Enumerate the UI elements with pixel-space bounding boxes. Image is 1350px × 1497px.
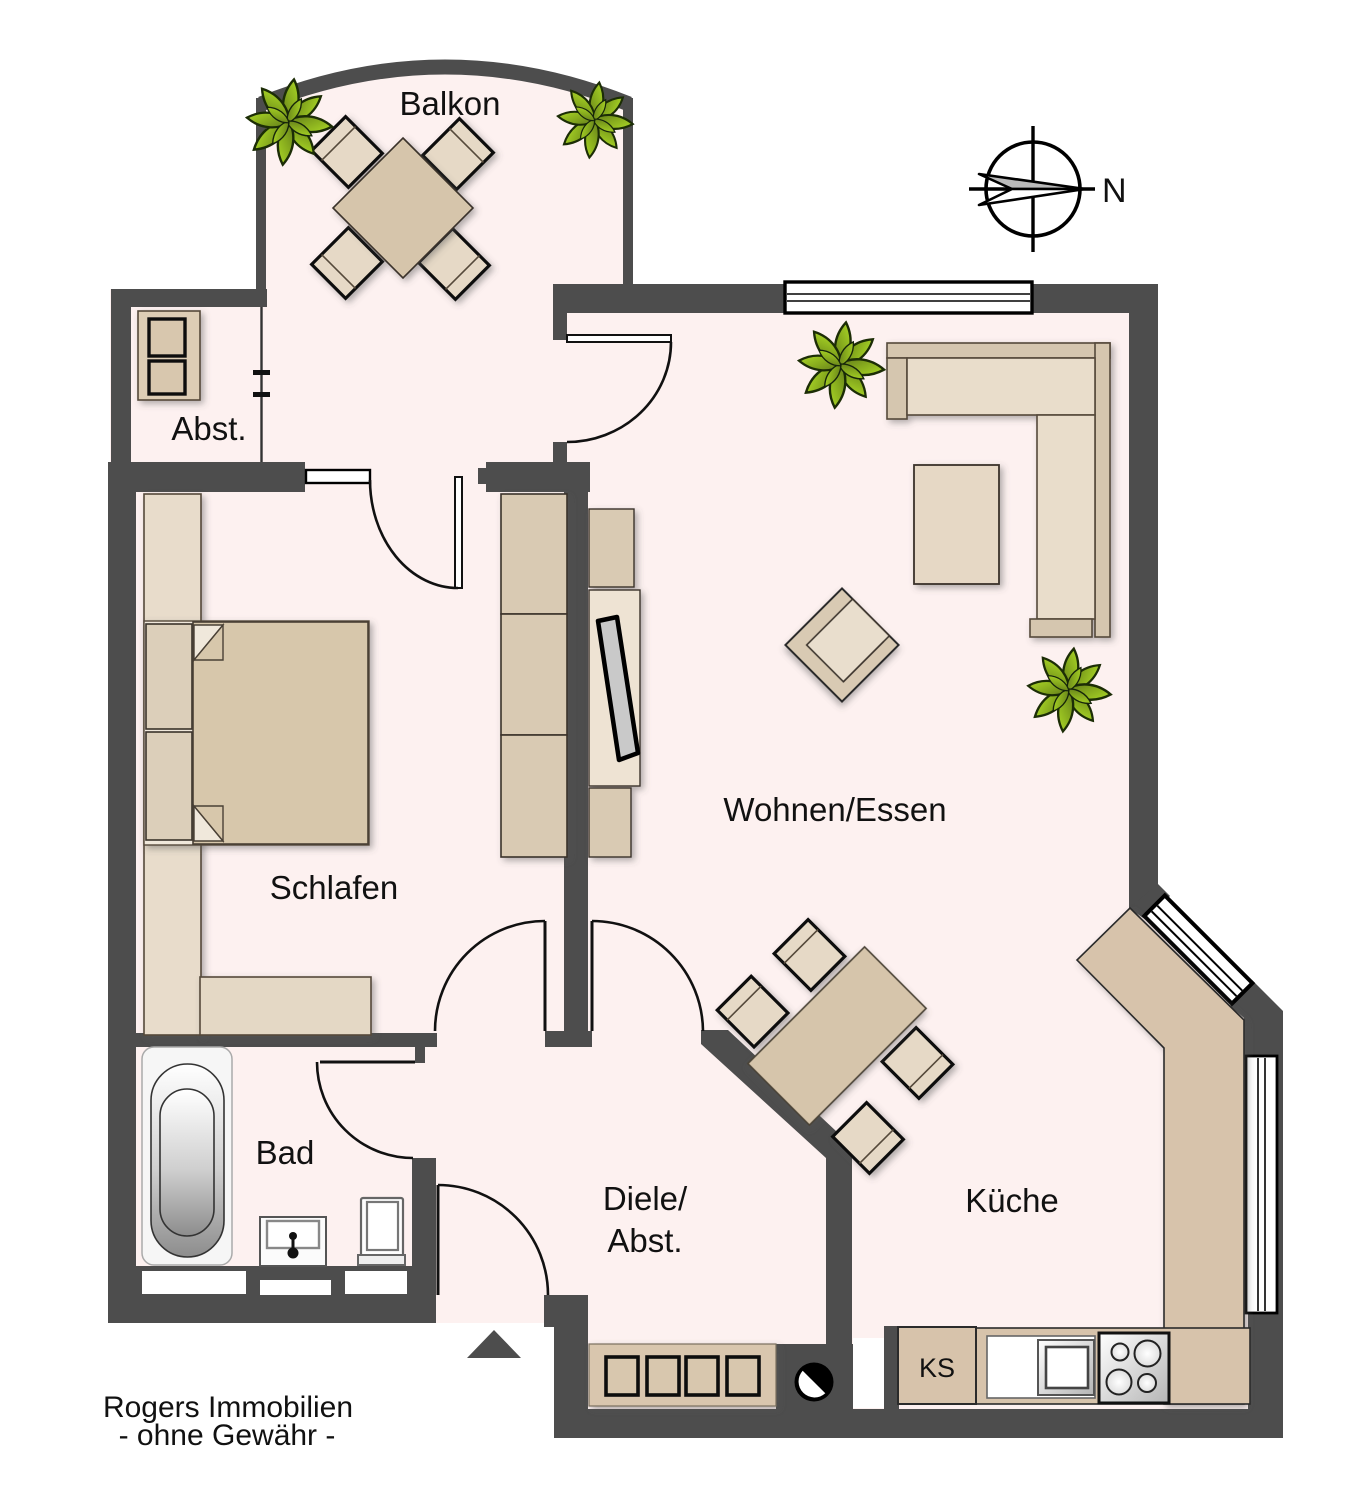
svg-text:KS: KS (919, 1353, 955, 1383)
svg-text:- ohne Gewähr -: - ohne Gewähr - (119, 1419, 336, 1452)
svg-text:Wohnen/Essen: Wohnen/Essen (723, 791, 946, 828)
svg-text:Küche: Küche (965, 1182, 1059, 1219)
svg-text:Balkon: Balkon (400, 85, 501, 122)
svg-text:N: N (1102, 172, 1127, 210)
svg-text:Bad: Bad (256, 1134, 315, 1171)
svg-text:Abst.: Abst. (171, 410, 246, 447)
svg-text:Abst.: Abst. (607, 1222, 682, 1259)
svg-text:Diele/: Diele/ (603, 1180, 688, 1217)
svg-text:Schlafen: Schlafen (270, 869, 398, 906)
